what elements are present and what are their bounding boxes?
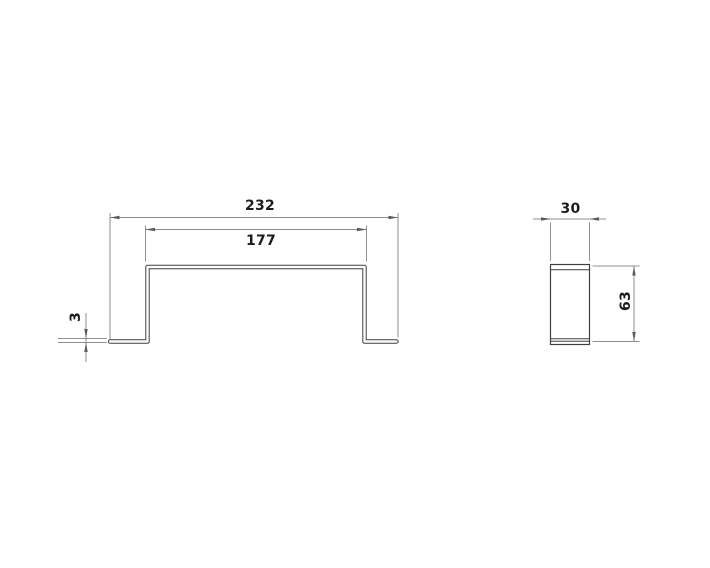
technical-drawing-canvas: 232 177 3 30 63 xyxy=(0,0,710,568)
front-view-sheet-outer xyxy=(110,267,397,342)
drawing-linework xyxy=(0,0,710,568)
arrow-30-right xyxy=(590,217,600,220)
side-view-body xyxy=(551,265,590,345)
side-view-outline xyxy=(551,265,590,345)
arrow-232-right xyxy=(389,216,399,219)
arrow-3-bottom xyxy=(84,343,87,353)
arrow-3-top xyxy=(84,329,87,339)
arrow-177-right xyxy=(357,228,367,231)
arrow-232-left xyxy=(110,216,120,219)
dimension-label-material-thickness: 3 xyxy=(69,312,83,322)
dim-30-lines xyxy=(533,219,606,261)
dimension-label-height: 63 xyxy=(619,290,633,310)
arrow-30-left xyxy=(541,217,551,220)
arrow-177-left xyxy=(146,228,156,231)
dimension-label-top-width: 177 xyxy=(246,234,276,248)
arrow-63-bottom xyxy=(632,332,635,342)
dimension-label-depth: 30 xyxy=(560,202,580,216)
front-view-sheet-inner xyxy=(110,267,397,342)
arrow-63-top xyxy=(632,266,635,276)
dimension-label-overall-width: 232 xyxy=(245,199,275,213)
front-view-outline xyxy=(110,267,397,342)
